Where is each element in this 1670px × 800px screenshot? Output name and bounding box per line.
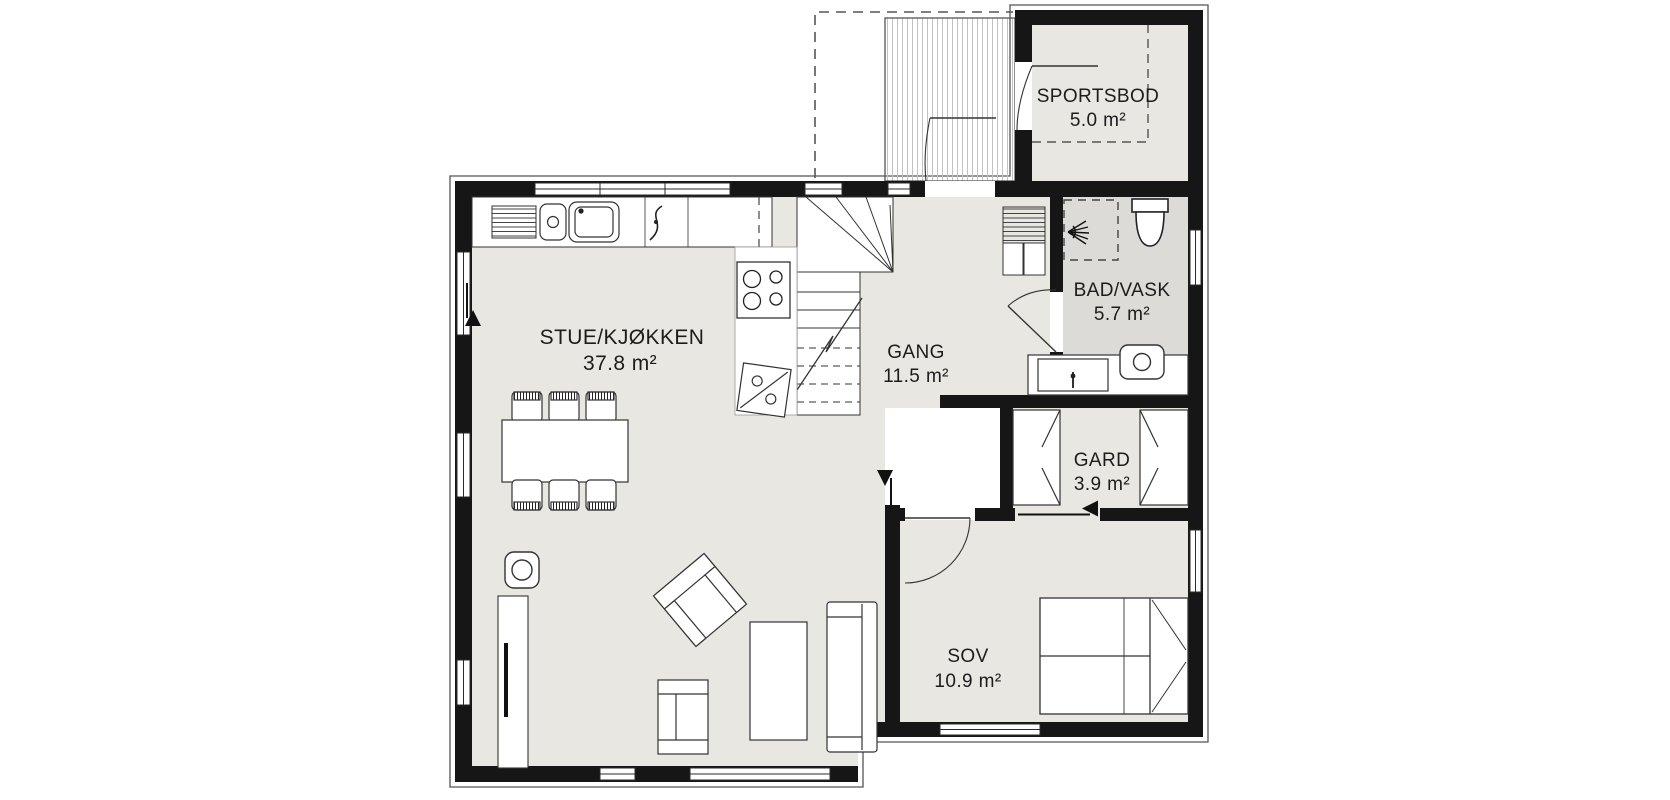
- label-gang-area2: 11.5 m²: [883, 366, 949, 387]
- label-sov-area: 10.9 m²: [934, 671, 1001, 692]
- wardrobe-left: [1013, 410, 1060, 505]
- label-bad-area: 5.7 m²: [1094, 304, 1150, 325]
- floor-plan-page: STUE/KJØKKEN 37.8 m² GANG 5.7 m² 11.5 m²…: [0, 0, 1670, 800]
- label-gard-area: 3.9 m²: [1074, 474, 1130, 495]
- window-top-2: [888, 183, 910, 195]
- porch-deck: [885, 18, 1015, 181]
- wood-stove-icon: [505, 552, 539, 588]
- label-bad-name: BAD/VASK: [1074, 280, 1171, 301]
- cooktop-icon: [737, 262, 790, 318]
- wall-bath-gard: [940, 395, 1203, 408]
- washing-machine-icon: [1038, 359, 1108, 391]
- vent-shaft: [1003, 207, 1045, 275]
- window-bottom-small: [600, 768, 635, 780]
- fridge-icon: [737, 363, 791, 417]
- floor-plan-canvas: STUE/KJØKKEN 37.8 m² GANG 5.7 m² 11.5 m²…: [0, 0, 1670, 800]
- dining-chair: [586, 392, 616, 422]
- label-stue-name: STUE/KJØKKEN: [540, 326, 705, 349]
- window-bottom-large: [690, 768, 830, 780]
- dining-chair: [512, 392, 542, 422]
- label-stue-area: 37.8 m²: [583, 352, 657, 375]
- bathroom-sink-icon: [1120, 345, 1164, 379]
- corridor-floor: [885, 408, 1013, 520]
- dining-chair: [549, 392, 579, 422]
- wall-living-bedroom: [885, 505, 900, 722]
- label-gang-name: GANG: [887, 342, 945, 363]
- tv-icon: [504, 643, 508, 717]
- window-kitchen: [535, 183, 730, 195]
- entrance-door-opening: [925, 181, 995, 197]
- label-gard-name: GARD: [1074, 450, 1131, 471]
- wall-sov-top-1: [885, 508, 905, 521]
- wall-gard-sov: [1100, 508, 1203, 521]
- coffee-table: [750, 622, 807, 740]
- window-top-1: [805, 183, 842, 195]
- double-bed: [1040, 598, 1188, 714]
- window-bedroom-bottom: [940, 724, 1040, 735]
- window-left-1: [457, 252, 470, 335]
- wardrobe-right: [1140, 410, 1188, 505]
- kitchen-sink: [540, 202, 619, 242]
- window-right-bath: [1190, 230, 1201, 285]
- wall-sov-top-2: [975, 508, 1015, 521]
- tv-bench: [498, 596, 528, 768]
- label-sportsbod-name: SPORTSBOD: [1037, 86, 1160, 107]
- sofa: [827, 602, 877, 752]
- label-sportsbod-area: 5.0 m²: [1070, 110, 1126, 131]
- window-left-3: [457, 660, 470, 705]
- dining-chair: [549, 480, 579, 510]
- dish-drainer: [492, 206, 536, 238]
- dining-chair: [586, 480, 616, 510]
- dining-chair: [512, 480, 542, 510]
- kitchen-appliance-column: [735, 247, 797, 417]
- dining-table: [502, 420, 628, 482]
- window-right-bedroom: [1190, 530, 1201, 592]
- wall-corridor-gard: [1000, 408, 1013, 520]
- dining-set: [502, 392, 628, 510]
- bathroom-door-opening: [1050, 292, 1063, 352]
- label-sov-name: SOV: [947, 646, 988, 667]
- armchair: [658, 680, 708, 754]
- window-left-2: [457, 433, 470, 497]
